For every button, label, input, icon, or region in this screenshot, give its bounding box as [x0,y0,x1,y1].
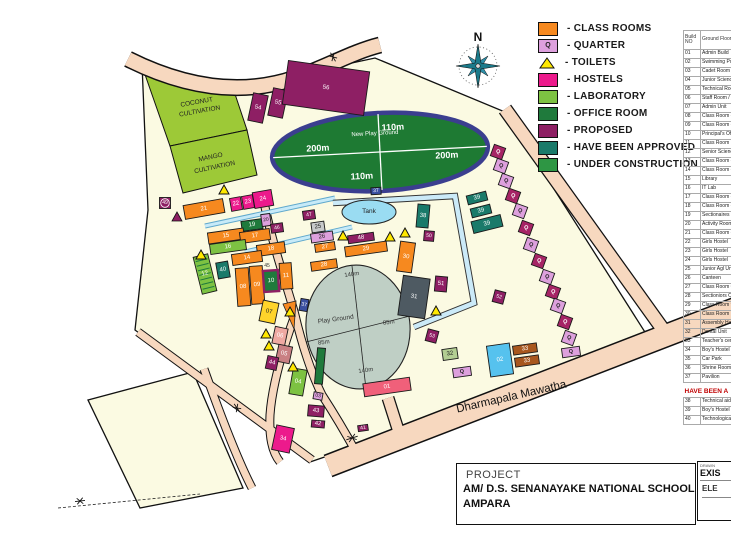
map-label: Tank [362,208,376,215]
build-no: 01 [684,50,701,59]
building-43: 43 [308,405,325,417]
build-no: 40 [684,416,701,425]
legend-item-laboratory: - LABORATORY [538,88,698,105]
legend-item-label: - HOSTELS [567,74,623,85]
table-row: 28Sectioniors Offic B [684,293,731,302]
table-row: 10Principal's Offic [684,131,731,140]
build-name: Class Room 9/10 [701,302,731,311]
building-number: 09 [253,282,261,288]
map-label: 200m [435,149,459,160]
build-no: 34 [684,347,701,356]
building-37: 37 [299,298,309,311]
build-no: 24 [684,257,701,266]
build-name: IT Lab [701,185,731,194]
drawing-code-bottom: ELE [702,484,731,498]
build-no: 35 [684,356,701,365]
build-name: Girls Hostel [701,257,731,266]
build-name: Cadet Room [701,68,731,77]
table-row: 21Class Room - 6 [684,230,731,239]
legend-swatch-icon [538,107,558,121]
building-number: 50 [426,233,432,239]
project-label: PROJECT [466,469,695,481]
legend-item-proposed: - PROPOSED [538,122,698,139]
build-name: Sectioniors Offic B [701,293,731,302]
map-label: 45 [264,263,270,269]
building-51: 51 [434,276,447,292]
build-name: Class Room - 12 [701,167,731,176]
build-no: 32 [684,329,701,338]
legend-item-hostels: - HOSTELS [538,71,698,88]
legend-swatch-icon [538,22,558,36]
legend-item-label: - PROPOSED [567,125,633,136]
table-row: 26Canteen [684,275,731,284]
build-name: Girls Hostel [701,248,731,257]
build-no: 13 [684,158,701,167]
build-no: 28 [684,293,701,302]
build-no: 25 [684,266,701,275]
build-no: 23 [684,248,701,257]
build-no: 18 [684,203,701,212]
build-no: 17 [684,194,701,203]
table-row: 01Admin Build [684,50,731,59]
building-40: 40 [216,261,231,279]
building-number: 08 [239,284,247,290]
build-name: Staff Room / Cla [701,95,731,104]
table-row: 36Shrine Room [684,365,731,374]
table-row: 29Class Room 9/10 [684,302,731,311]
compass-north-label: N [474,30,483,44]
building-number: 37 [373,188,379,194]
school-city: AMPARA [463,498,695,510]
build-name: Class Room - 10 [701,113,731,122]
building-table: BuildNOGround Floor01Admin Build02Swimmi… [683,30,731,425]
legend-item-label: - TOILETS [565,57,616,68]
table-row: 09Class Room - 13 [684,122,731,131]
build-name: Junior Science La [701,77,731,86]
table-row: 32Dental Unit [684,329,731,338]
building-number: 46 [274,225,281,232]
legend-item-label: - HAVE BEEN APPROVED [567,142,695,153]
building-number: 49 [162,200,168,206]
build-no: 14 [684,167,701,176]
build-no: 08 [684,113,701,122]
table-row: 08Class Room - 10 [684,113,731,122]
build-name: Class Room - 6 [701,230,731,239]
build-name: Class Room - 13 [701,158,731,167]
site-plan-page: 2122232419204615171618144012080910114947… [0,0,731,533]
table-row: 03Cadet Room [684,68,731,77]
building-08: 08 [235,268,251,307]
build-name: Shrine Room [701,365,731,374]
table-row: 33Teacher's center [684,338,731,347]
build-no: 02 [684,59,701,68]
legend-item-office-room: - OFFICE ROOM [538,105,698,122]
build-name: Swimming Pool [701,59,731,68]
building-number: 47 [306,212,313,219]
table-row: 15Library [684,176,731,185]
build-no: 29 [684,302,701,311]
legend-item-label: - UNDER CONSTRUCTION [567,159,698,170]
build-name: Class Room 11 [701,311,731,320]
legend-item-quarter: Q- QUARTER [538,37,698,54]
build-no: 06 [684,95,701,104]
build-name: Girls Hostel [701,239,731,248]
table-row: 07Admin Unit [684,104,731,113]
build-name: Technical aid Co [701,398,731,407]
build-no: 09 [684,122,701,131]
building-20: 20 [261,213,272,226]
build-no: 22 [684,239,701,248]
table-row: 27Class Room Com [684,284,731,293]
building-number: 10 [267,278,275,284]
building-number: 38 [419,213,427,220]
building-44: 44 [265,355,278,370]
build-name: Class Room [701,140,731,149]
table-row: 40Technological/La [684,416,731,425]
legend-swatch-icon [538,90,558,104]
building-number: 42 [314,421,322,428]
build-name: Library [701,176,731,185]
map-label: 200m [306,142,330,153]
build-name: Class Room Com [701,284,731,293]
table-row: 38Technical aid Co [684,398,731,407]
building-number: 43 [312,408,320,415]
table-row: 37Pavilion [684,374,731,383]
table-row: 30Class Room 11 [684,311,731,320]
build-no: 33 [684,338,701,347]
build-name: Class Room - 08 [701,194,731,203]
build-no: 37 [684,374,701,383]
build-no: 11 [684,140,701,149]
building-37: 37 [371,187,381,195]
toilet-swatch-icon [538,56,556,70]
building-41: 41 [358,424,369,431]
building-number: 51 [437,281,445,288]
building-47: 47 [302,210,315,221]
table-row: 17Class Room - 08 [684,194,731,203]
quarter-building: Q [561,346,580,357]
building-49: 49 [160,198,171,209]
build-name: Admin Unit [701,104,731,113]
build-no: 38 [684,398,701,407]
build-no: 07 [684,104,701,113]
school-name: AM/ D.S. SENANAYAKE NATIONAL SCHOOL [463,483,695,495]
build-no: 15 [684,176,701,185]
build-no: 27 [684,284,701,293]
drawing-code-top: EXIS [700,468,731,481]
table-row: 25Junior Agl Unit [684,266,731,275]
legend-item-label: - QUARTER [567,40,625,51]
build-no: 31 [684,320,701,329]
legend-swatch-icon [538,158,558,172]
build-name: Class Room - 13 [701,122,731,131]
table-row: 34Boy's Hostel [684,347,731,356]
build-name: Canteen [701,275,731,284]
build-no: 30 [684,311,701,320]
legend-swatch-icon: Q [538,39,558,53]
building-number: 11 [283,273,290,279]
building-24: 24 [252,189,273,208]
table-row: 02Swimming Pool [684,59,731,68]
building-11: 11 [279,263,293,290]
table-row: 04Junior Science La [684,77,731,86]
build-no: 21 [684,230,701,239]
building-22: 22 [229,197,242,212]
legend-item-label: - LABORATORY [567,91,646,102]
table-row: 12Senior Science U [684,149,731,158]
build-name: Technical Room/ [701,86,731,95]
legend: - CLASS ROOMSQ- QUARTER- TOILETS- HOSTEL… [538,20,698,173]
table-row: 31Assembly Hall (S [684,320,731,329]
table-row: 24Girls Hostel [684,257,731,266]
legend-item-label: - OFFICE ROOM [567,108,648,119]
legend-item-toilets: - TOILETS [538,54,698,71]
table-row: 05Technical Room/ [684,86,731,95]
building-32: 32 [442,348,458,361]
build-no: 05 [684,86,701,95]
build-no: 03 [684,68,701,77]
build-name: Car Park [701,356,731,365]
table-row: 22Girls Hostel [684,239,731,248]
table-row: 39Boy's Hostel [684,407,731,416]
table-row: 19Sectionaires Offic [684,212,731,221]
building-number: 20 [263,217,270,224]
legend-item-label: - CLASS ROOMS [567,23,651,34]
build-no: 10 [684,131,701,140]
quarter-building: Q [452,366,471,377]
building-42: 42 [311,420,325,428]
table-header-floor: Ground Floor [701,31,731,50]
build-no: 16 [684,185,701,194]
building-31: 31 [398,275,430,318]
build-no: 19 [684,212,701,221]
building-53: 53 [425,329,439,343]
building-02: 02 [486,343,513,377]
build-no: 20 [684,221,701,230]
build-name: Dental Unit [701,329,731,338]
table-row: 16IT Lab [684,185,731,194]
build-name: Activity Rooms [701,221,731,230]
building-03: 03 [313,392,323,400]
building-25: 25 [311,221,325,233]
build-no: 39 [684,407,701,416]
building-52: 52 [492,290,506,304]
build-name: Teacher's center [701,338,731,347]
legend-item-have-been-approved: - HAVE BEEN APPROVED [538,139,698,156]
legend-swatch-icon [538,124,558,138]
map-label: 110m [350,170,373,181]
building-number: 41 [360,425,367,432]
build-name: Technological/La [701,416,731,425]
table-row: 35Car Park [684,356,731,365]
table-row: 11Class Room [684,140,731,149]
table-header-no: BuildNO [684,31,701,50]
building-46: 46 [270,223,283,234]
build-no: 36 [684,365,701,374]
title-block: PROJECT AM/ D.S. SENANAYAKE NATIONAL SCH… [456,463,696,525]
legend-item-class-rooms: - CLASS ROOMS [538,20,698,37]
build-name: Class Room - 07 [701,203,731,212]
build-name: Principal's Offic [701,131,731,140]
table-row: 18Class Room - 07 [684,203,731,212]
build-no: 26 [684,275,701,284]
table-row: 14Class Room - 12 [684,167,731,176]
legend-swatch-icon [538,141,558,155]
table-row: 20Activity Rooms [684,221,731,230]
build-no: 04 [684,77,701,86]
table-row: 13Class Room - 13 [684,158,731,167]
map-label: 110m [381,121,404,132]
table-row: 06Staff Room / Cla [684,95,731,104]
compass-rose: N [456,30,500,88]
build-no: 12 [684,149,701,158]
build-name: Boy's Hostel [701,407,731,416]
building-10: 10 [263,270,279,292]
legend-swatch-icon [538,73,558,87]
build-name: Pavilion [701,374,731,383]
approved-section-heading: HAVE BEEN A [684,383,731,398]
build-name: Junior Agl Unit [701,266,731,275]
build-name: Sectionaires Offic [701,212,731,221]
building-38: 38 [416,204,430,228]
legend-item-under-construction: - UNDER CONSTRUCTION [538,156,698,173]
building-50: 50 [424,231,435,242]
drawing-code-box: DRAWN EXIS ELE [697,461,731,521]
build-name: Boy's Hostel [701,347,731,356]
build-name: Assembly Hall (S [701,320,731,329]
build-name: Admin Build [701,50,731,59]
table-row: 23Girls Hostel [684,248,731,257]
build-name: Senior Science U [701,149,731,158]
